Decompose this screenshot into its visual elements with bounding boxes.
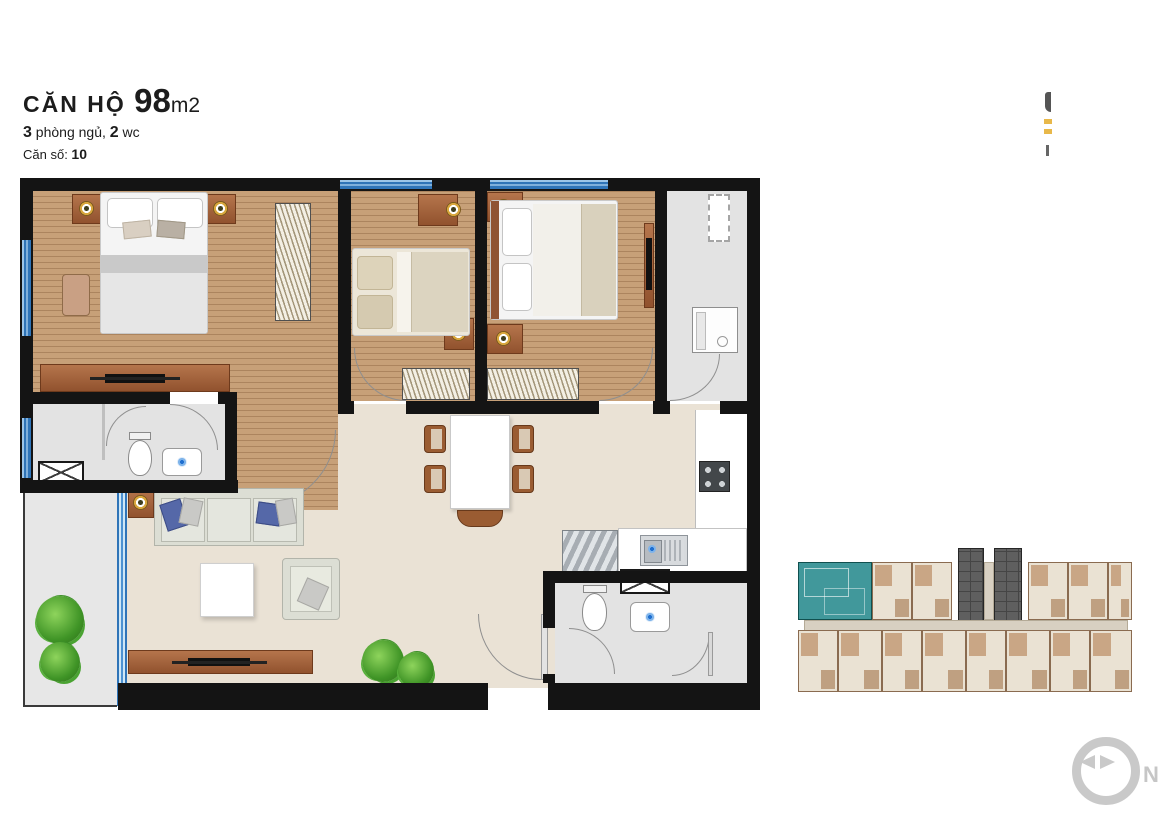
washer-dial-icon <box>717 336 728 347</box>
wall-segment <box>548 683 760 710</box>
tv <box>646 238 652 290</box>
keyplan-unit <box>882 630 922 692</box>
keyplan-unit <box>1050 630 1090 692</box>
floor-plan <box>20 178 760 710</box>
keyplan-elevator-core <box>958 548 984 622</box>
headboard <box>491 201 499 319</box>
stove-cooktop <box>699 461 730 492</box>
washer-controls <box>696 312 706 350</box>
tv-stand <box>172 661 267 664</box>
wall-segment <box>118 683 488 710</box>
keyplan-unit <box>872 562 912 620</box>
table-lamp-icon <box>496 331 511 346</box>
building-key-plan <box>798 546 1132 698</box>
window <box>340 180 432 189</box>
blanket <box>101 255 207 333</box>
sofa <box>154 488 304 546</box>
coffee-table <box>200 563 254 617</box>
keyplan-unit <box>966 630 1006 692</box>
keyplan-unit <box>922 630 966 692</box>
wardrobe <box>402 368 470 400</box>
table-lamp-icon <box>213 201 228 216</box>
cropped-logo-fragment <box>1045 92 1051 112</box>
accent-pillow <box>156 220 185 239</box>
faucet-icon <box>648 545 656 553</box>
apartment-title: CĂN HỘ 98m2 <box>23 82 200 120</box>
window <box>22 240 31 336</box>
cropped-logo-fragment <box>1044 129 1052 134</box>
wc-count: 2 <box>110 124 119 141</box>
wall-segment <box>338 191 351 414</box>
plan-header: CĂN HỘ 98m2 3 phòng ngủ, 2 wc Căn số: 10 <box>23 82 200 162</box>
pillow <box>502 208 532 256</box>
blanket <box>581 204 616 316</box>
wardrobe <box>275 203 311 321</box>
page: { "header": { "title": "CĂN HỘ", "area_v… <box>0 0 1170 831</box>
pillow <box>502 263 532 311</box>
compass-north-label: N <box>1143 762 1159 788</box>
armchair <box>62 274 90 316</box>
window <box>490 180 608 189</box>
keyplan-top-row <box>798 562 1132 620</box>
keyplan-bottom-row <box>798 630 1132 692</box>
keyplan-unit <box>798 630 838 692</box>
sofa-seat <box>207 498 251 542</box>
plant <box>36 596 84 644</box>
wall-segment <box>32 392 170 404</box>
wall-segment <box>720 401 747 414</box>
plant <box>40 642 80 682</box>
sink-basin <box>630 602 670 632</box>
accent-pillow <box>122 220 152 240</box>
wall-segment <box>747 178 760 683</box>
keyplan-unit <box>1108 562 1132 620</box>
dining-table <box>450 415 510 509</box>
keyplan-unit-highlighted <box>798 562 872 620</box>
sheet-fold <box>397 252 411 332</box>
sink-basin <box>162 448 202 476</box>
refrigerator <box>562 530 618 572</box>
pillow <box>357 256 393 290</box>
dining-chair <box>512 425 534 453</box>
table-lamp-icon <box>133 495 148 510</box>
door-leaf <box>708 632 713 676</box>
wall-segment <box>406 401 599 414</box>
wall-segment <box>338 401 354 414</box>
compass-needle-east-icon <box>1100 755 1115 769</box>
kitchen-sink <box>640 535 688 566</box>
wall-segment <box>543 571 747 583</box>
title-label: CĂN HỘ <box>23 91 126 117</box>
wall-segment <box>543 674 555 683</box>
keyplan-elevator-core <box>994 548 1022 622</box>
wall-segment <box>475 191 487 401</box>
sheet <box>533 204 581 316</box>
compass-icon <box>1072 737 1140 805</box>
sink-drainer <box>664 540 684 561</box>
master-bed <box>100 192 208 334</box>
bedroom-label: phòng ngủ, <box>32 124 110 140</box>
bath-partition <box>102 404 105 460</box>
rooms-line: 3 phòng ngủ, 2 wc <box>23 124 200 142</box>
balcony-glass-door <box>117 493 127 706</box>
unit-number-label: Căn số: <box>23 147 71 162</box>
wall-segment <box>543 571 555 628</box>
table-lamp-icon <box>446 202 461 217</box>
plant <box>362 640 404 682</box>
dining-chair <box>424 465 446 493</box>
toilet-tank <box>129 432 151 440</box>
area-unit: m2 <box>171 94 200 117</box>
pillow <box>357 295 393 329</box>
compass-needle-west-icon <box>1080 755 1095 769</box>
dining-chair <box>512 465 534 493</box>
bedroom-count: 3 <box>23 124 32 141</box>
wall-segment <box>653 401 670 414</box>
toilet <box>582 593 607 631</box>
wc-label: wc <box>119 124 140 140</box>
table-lamp-icon <box>79 201 94 216</box>
double-bed <box>490 200 618 320</box>
window <box>22 418 31 478</box>
keyplan-unit <box>1090 630 1132 692</box>
toilet <box>128 440 152 476</box>
unit-number-line: Căn số: 10 <box>23 146 200 162</box>
unit-number: 10 <box>71 146 87 162</box>
tv-stand <box>90 377 180 380</box>
keyplan-unit <box>1028 562 1068 620</box>
ac-ledge <box>708 194 730 242</box>
washing-machine <box>692 307 738 353</box>
cropped-logo-fragment <box>1046 145 1049 156</box>
dining-chair <box>457 510 503 527</box>
area-value: 98 <box>134 82 171 119</box>
single-bed <box>352 248 470 336</box>
keyplan-unit <box>838 630 882 692</box>
keyplan-unit <box>1006 630 1050 692</box>
wall-segment <box>655 191 667 401</box>
wall-segment <box>20 480 238 493</box>
keyplan-unit <box>912 562 952 620</box>
keyplan-lobby <box>984 562 994 620</box>
blanket <box>411 252 468 332</box>
armchair <box>282 558 340 620</box>
wall-segment <box>225 392 237 492</box>
cropped-logo-fragment <box>1044 119 1052 124</box>
keyplan-unit <box>1068 562 1108 620</box>
dining-chair <box>424 425 446 453</box>
toilet-tank <box>583 585 607 593</box>
wardrobe <box>487 368 579 400</box>
